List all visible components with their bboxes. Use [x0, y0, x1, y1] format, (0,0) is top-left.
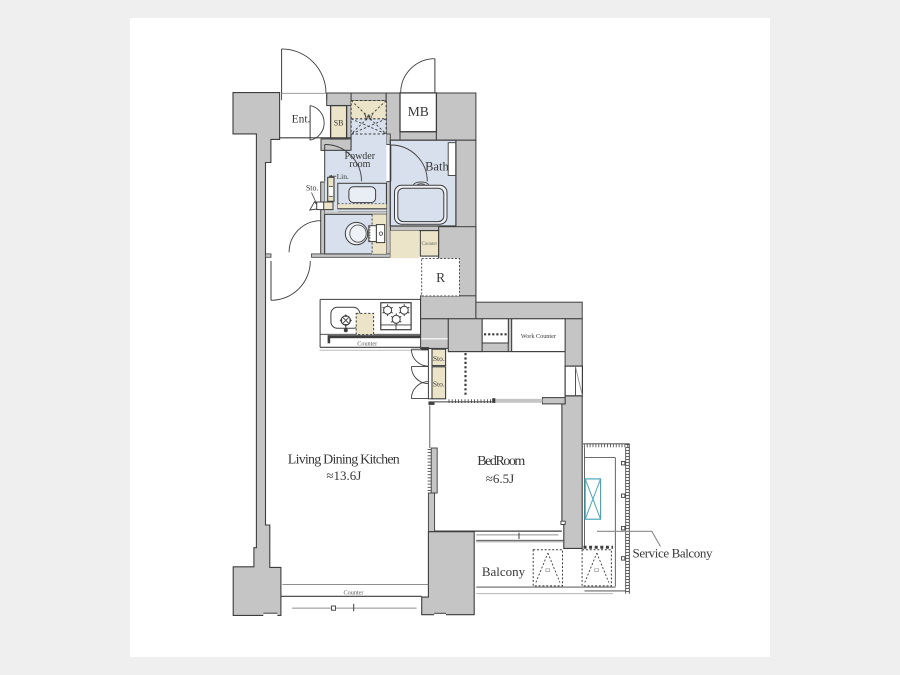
svg-text:Sto.: Sto.	[433, 380, 445, 389]
svg-text:Counter: Counter	[357, 341, 377, 348]
svg-text:≈13.6J: ≈13.6J	[326, 468, 361, 483]
svg-text:Lin.: Lin.	[337, 172, 349, 181]
svg-text:SB: SB	[334, 118, 344, 127]
svg-text:Counter: Counter	[422, 242, 438, 247]
svg-text:Work Counter: Work Counter	[521, 333, 556, 340]
svg-text:Service Balcony: Service Balcony	[633, 546, 714, 561]
svg-text:R: R	[436, 270, 445, 285]
svg-text:Balcony: Balcony	[482, 564, 526, 579]
svg-text:BedRoom: BedRoom	[477, 454, 525, 469]
svg-text:Ent.: Ent.	[292, 113, 311, 125]
svg-text:Bath: Bath	[425, 159, 449, 173]
svg-text:≈6.5J: ≈6.5J	[486, 471, 514, 486]
svg-text:Living Dining Kitchen: Living Dining Kitchen	[288, 452, 400, 467]
svg-text:Sto.: Sto.	[433, 354, 445, 363]
svg-text:room: room	[349, 159, 370, 170]
svg-text:Counter: Counter	[344, 589, 364, 596]
svg-text:Sto.: Sto.	[306, 184, 319, 193]
svg-text:MB: MB	[408, 104, 429, 119]
svg-text:W: W	[364, 112, 374, 123]
